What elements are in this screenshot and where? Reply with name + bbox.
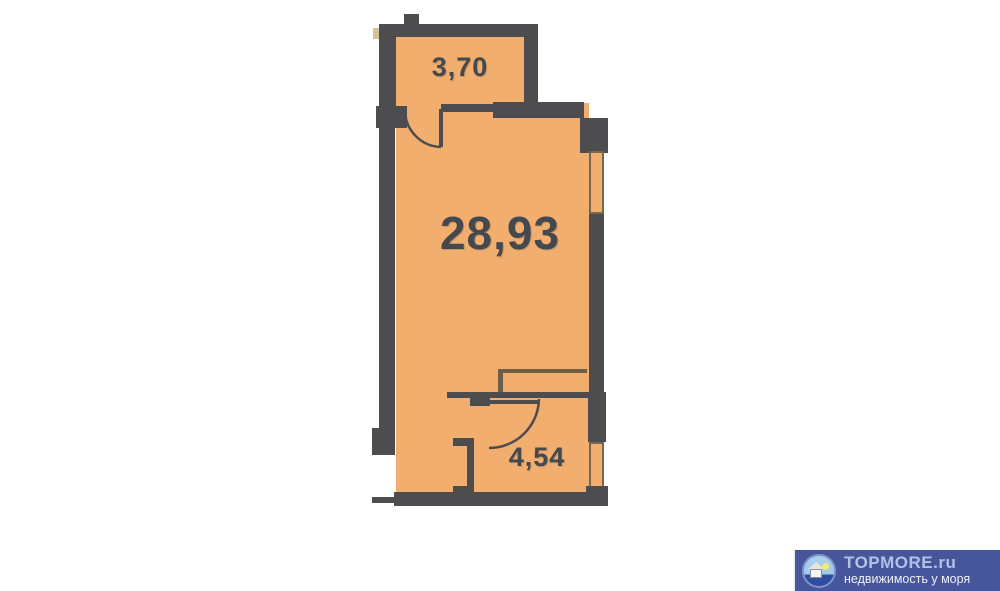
house-by-sea-icon — [802, 554, 836, 588]
topmore-watermark: TOPMORE.ru недвижимость у моря — [795, 550, 1000, 591]
wardrobe-left-line — [498, 369, 503, 392]
wall-top-right — [493, 102, 584, 118]
wall-left-upper — [379, 24, 396, 110]
wall-left-step — [372, 450, 395, 455]
room-area-label-living-room: 28,93 — [400, 206, 600, 260]
wall-left-block — [372, 428, 395, 450]
wall-balcony-right — [524, 24, 538, 106]
watermark-tagline-text: недвижимость у моря — [844, 573, 970, 587]
bathroom-door-hinge-stub — [470, 396, 490, 406]
watermark-brand-text: TOPMORE.ru — [844, 554, 970, 573]
wall-right-bathroom — [588, 392, 606, 442]
wall-left-pier — [376, 106, 407, 128]
house-body-icon — [810, 569, 822, 578]
wall-top — [379, 24, 538, 37]
wall-left-mid — [379, 128, 395, 450]
wall-bottom — [394, 492, 608, 506]
wall-bathroom-top — [447, 392, 589, 398]
wall-bottom-left-tail — [372, 497, 394, 503]
window-living-room — [589, 151, 604, 214]
room-area-label-bathroom: 4,54 — [470, 442, 604, 473]
room-area-label-balcony: 3,70 — [396, 52, 524, 83]
floor-plan-screenshot: 3,70 28,93 4,54 TOPMORE.ru недвижимость … — [0, 0, 1000, 591]
wall-balcony-partition-thin — [441, 104, 493, 112]
wardrobe-top-line — [498, 369, 587, 373]
wall-bottom-notch — [453, 486, 470, 497]
living-room-fill — [396, 103, 589, 497]
house-roof-icon — [808, 562, 824, 569]
wall-top-right-corner — [580, 118, 608, 153]
